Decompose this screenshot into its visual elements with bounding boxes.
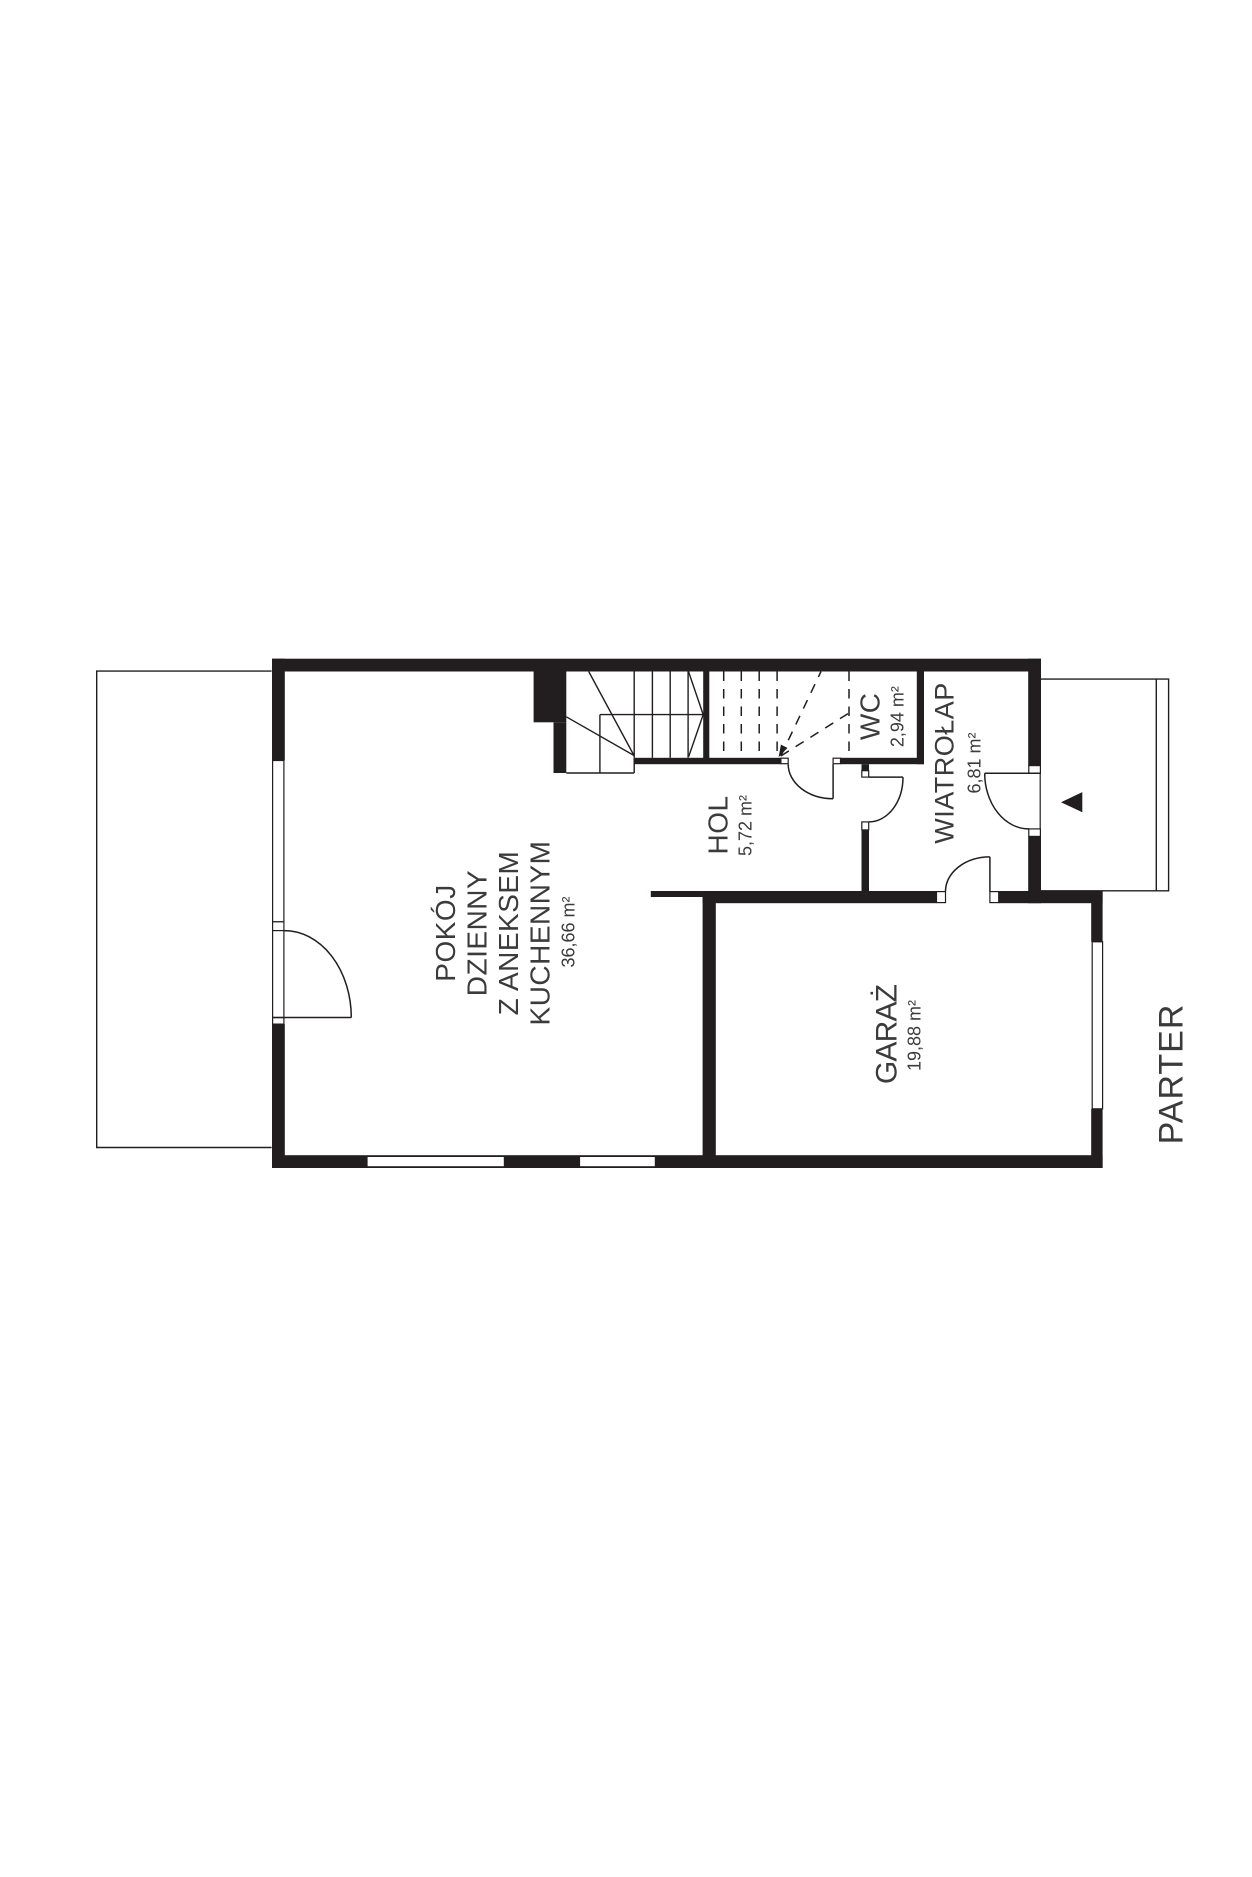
svg-text:PARTER: PARTER <box>1153 1004 1191 1145</box>
svg-text:KUCHENNYM: KUCHENNYM <box>524 841 555 1026</box>
svg-text:GARAŻ: GARAŻ <box>871 984 904 1084</box>
svg-text:5,72 m²: 5,72 m² <box>736 795 756 856</box>
svg-text:POKÓJ: POKÓJ <box>430 884 461 981</box>
svg-text:36,66 m²: 36,66 m² <box>558 896 578 967</box>
svg-text:DZIENNY: DZIENNY <box>462 870 493 996</box>
svg-text:2,94 m²: 2,94 m² <box>887 686 907 747</box>
svg-text:WIATROŁAP: WIATROŁAP <box>930 682 960 844</box>
svg-text:19,88 m²: 19,88 m² <box>904 1000 924 1071</box>
svg-text:WC: WC <box>854 692 885 740</box>
svg-text:Z ANEKSEM: Z ANEKSEM <box>493 851 524 1016</box>
svg-text:6,81 m²: 6,81 m² <box>965 732 985 793</box>
svg-text:HOL: HOL <box>703 795 734 854</box>
